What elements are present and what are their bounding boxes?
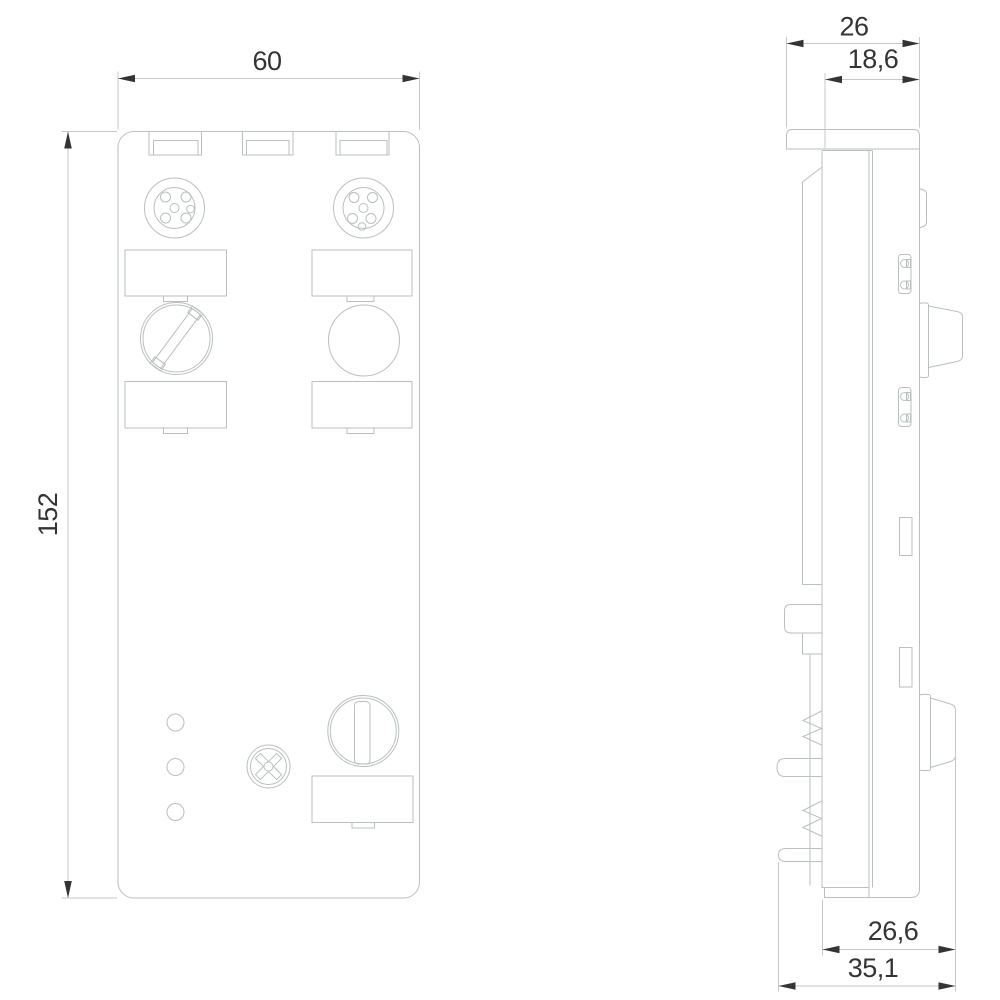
side-top-cap (787, 130, 920, 150)
side-connector-knob-lower (920, 695, 956, 771)
terminal-plate-tab (347, 428, 374, 434)
arrowhead (903, 40, 920, 48)
arrowhead (779, 982, 796, 990)
arrowhead (403, 75, 420, 83)
dimension-label: 18,6 (848, 44, 899, 74)
clip-frame (899, 388, 912, 427)
dimensions: 60 152 26 18,6 (33, 12, 956, 992)
side-slot-2 (900, 648, 913, 688)
arrowhead (823, 946, 840, 954)
blank-round-cover (329, 305, 400, 376)
arrowhead (64, 132, 72, 149)
dimension-label: 26 (839, 12, 868, 42)
arrowhead (939, 982, 956, 990)
knob-base (920, 303, 929, 378)
screw-outer-ring (247, 745, 290, 788)
terminal-plate-bottom-right (312, 776, 413, 828)
connector-pin (366, 214, 376, 224)
terminal-plate (125, 250, 227, 296)
mounting-tab-clip (154, 141, 199, 156)
slot-bar (153, 309, 201, 369)
knob-cone (931, 698, 956, 768)
connector-pin (348, 214, 358, 224)
clip-frame (899, 255, 912, 294)
knob-cone (929, 306, 963, 368)
arrowhead (64, 881, 72, 898)
side-view (777, 130, 963, 898)
dimension-label: 26,6 (868, 916, 919, 946)
addressing-switch (141, 303, 213, 375)
connector-pin (368, 193, 378, 203)
dim-front-height: 152 (33, 132, 117, 899)
mounting-tab-clip (247, 141, 290, 156)
terminal-plate-top-left (125, 250, 227, 302)
mounting-tab-slot (149, 132, 202, 156)
connector-pin (181, 192, 191, 202)
din-rail-release-tab (785, 605, 823, 634)
terminal-plate-tab (164, 296, 188, 302)
front-view (118, 132, 420, 899)
side-body-bottom (822, 862, 920, 898)
fixing-screw (247, 745, 290, 788)
clip-rivet (901, 414, 909, 422)
dimension-drawing-canvas: 60 152 26 18,6 (0, 0, 1000, 1000)
back-plate-edge (803, 151, 823, 585)
connector-pin (349, 193, 359, 203)
arrowhead (118, 75, 135, 83)
switch-slot (150, 306, 203, 371)
terminal-plate-tab (352, 823, 375, 829)
terminal-plate-tab (347, 296, 374, 302)
arrowhead (939, 946, 956, 954)
connector-center-pin (359, 204, 368, 213)
dimension-label: 60 (252, 46, 281, 76)
side-slot-1 (900, 518, 913, 556)
connector-pin (161, 213, 171, 223)
clip-rivet (901, 281, 909, 289)
connector-center-pin (170, 204, 179, 213)
arrowhead (825, 76, 842, 84)
led-indicators (167, 714, 184, 821)
mounting-tab-1 (149, 132, 202, 156)
front-body-outline (118, 132, 420, 899)
technical-drawing-page: 60 152 26 18,6 (0, 0, 1000, 1000)
din-rail-spring-lower (803, 801, 822, 836)
terminal-plate (312, 776, 413, 823)
terminal-plate-tab (164, 428, 188, 434)
connector-key-notch (358, 223, 366, 231)
terminal-plate-mid-right (312, 382, 412, 434)
side-connector-knob-upper (920, 303, 963, 378)
connector-pin (161, 192, 171, 202)
mounting-pin-lower (779, 849, 822, 862)
din-rail-spring-upper (803, 711, 822, 745)
dimension-label: 152 (33, 493, 63, 537)
dim-side-top-inner: 18,6 (825, 44, 920, 148)
clip-rivet (901, 260, 909, 268)
knob-base (920, 695, 931, 771)
mounting-tab-3 (336, 132, 389, 156)
mounting-tab-slot (336, 132, 389, 156)
side-clip-1 (899, 255, 912, 294)
m12-connector-right (334, 178, 394, 238)
led-indicator (167, 804, 184, 821)
led-indicator (167, 759, 184, 776)
din-rail-lock-box (803, 633, 823, 654)
dim-front-width: 60 (118, 46, 420, 130)
m12-connector-left (145, 178, 205, 238)
side-clip-2 (899, 388, 912, 427)
terminal-plate (312, 382, 412, 429)
selector-inner-ring (330, 698, 396, 764)
side-block (920, 189, 927, 229)
mounting-tab-slot (243, 132, 294, 156)
connector-key-notch (187, 205, 195, 213)
mounting-tab-2 (243, 132, 294, 156)
selector-slot (355, 702, 371, 765)
terminal-plate-top-right (312, 250, 412, 302)
selector-outer-ring (328, 696, 399, 767)
arrowhead (903, 76, 920, 84)
mounting-pin-upper (777, 759, 822, 777)
arrowhead (787, 40, 804, 48)
led-indicator (167, 714, 184, 731)
clip-rivet (901, 393, 909, 401)
terminal-plate-mid-left (125, 382, 227, 434)
dim-side-bottom-inner: 26,6 (823, 710, 956, 992)
terminal-plate (312, 250, 412, 296)
connector-pin (181, 213, 191, 223)
screw-inner-ring (251, 749, 287, 785)
terminal-plate (125, 382, 227, 429)
mounting-tab-clip (340, 141, 387, 156)
rotary-selector (328, 696, 399, 767)
dimension-label: 35,1 (848, 953, 899, 983)
screw-center (264, 762, 273, 771)
